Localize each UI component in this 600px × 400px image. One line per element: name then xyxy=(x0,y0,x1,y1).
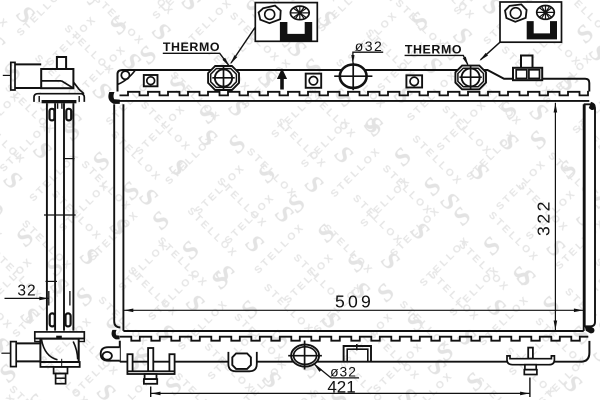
svg-text:THERMO: THERMO xyxy=(405,42,462,56)
svg-text:ø32: ø32 xyxy=(355,38,384,54)
svg-text:421: 421 xyxy=(327,378,355,397)
svg-text:509: 509 xyxy=(335,292,374,312)
svg-text:32: 32 xyxy=(17,282,36,299)
svg-text:THERMO: THERMO xyxy=(163,40,220,54)
svg-text:322: 322 xyxy=(534,199,554,236)
